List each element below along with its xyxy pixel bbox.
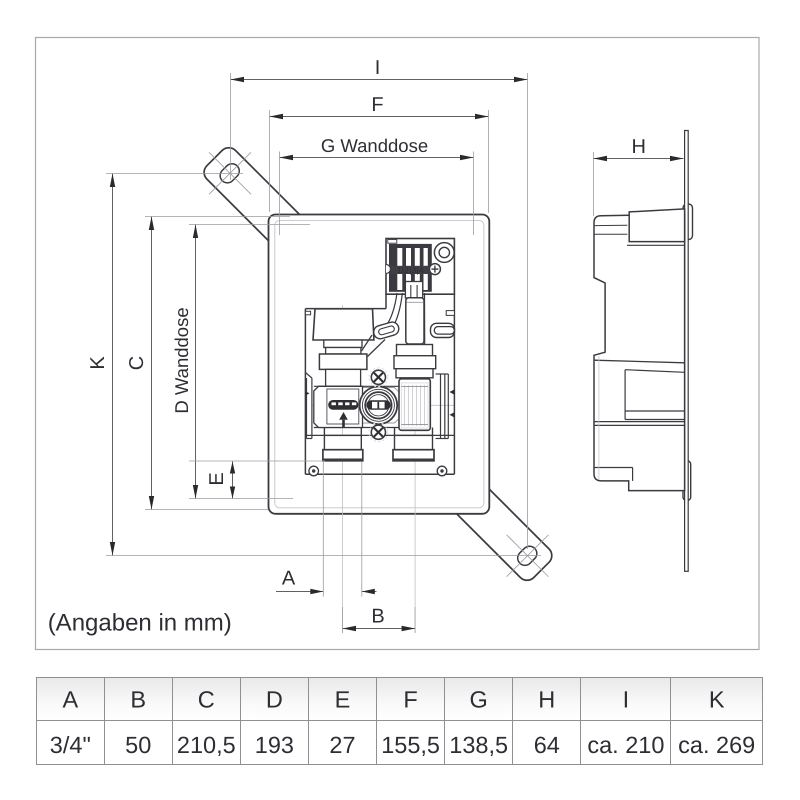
svg-text:1|2|3|4: 1|2|3|4 [397, 266, 424, 275]
svg-text:A: A [62, 687, 78, 713]
svg-text:138,5: 138,5 [449, 732, 508, 758]
svg-text:C: C [126, 356, 148, 370]
svg-text:64: 64 [534, 732, 560, 758]
svg-text:E: E [206, 472, 228, 485]
svg-text:H: H [632, 136, 646, 158]
svg-text:ca. 269: ca. 269 [678, 732, 755, 758]
svg-text:A: A [282, 568, 296, 590]
svg-text:210,5: 210,5 [177, 732, 236, 758]
svg-text:I: I [375, 57, 381, 79]
svg-text:C: C [198, 687, 215, 713]
svg-text:G Wanddose: G Wanddose [321, 135, 428, 156]
svg-text:F: F [403, 687, 417, 713]
svg-text:B: B [130, 687, 146, 713]
svg-text:I: I [623, 687, 630, 713]
svg-text:50: 50 [125, 732, 151, 758]
svg-text:27: 27 [329, 732, 355, 758]
svg-text:K: K [87, 356, 109, 370]
svg-text:K: K [709, 687, 725, 713]
svg-text:F: F [371, 94, 383, 116]
svg-text:E: E [335, 687, 351, 713]
svg-text:3/4": 3/4" [50, 732, 91, 758]
svg-text:B: B [371, 605, 384, 627]
svg-text:D: D [266, 687, 283, 713]
svg-text:G: G [470, 687, 488, 713]
svg-text:D Wanddose: D Wanddose [171, 307, 192, 413]
svg-text:155,5: 155,5 [381, 732, 440, 758]
svg-text:193: 193 [255, 732, 294, 758]
svg-text:H: H [538, 687, 555, 713]
svg-text:ca. 210: ca. 210 [587, 732, 664, 758]
svg-text:(Angaben in mm): (Angaben in mm) [48, 610, 232, 637]
